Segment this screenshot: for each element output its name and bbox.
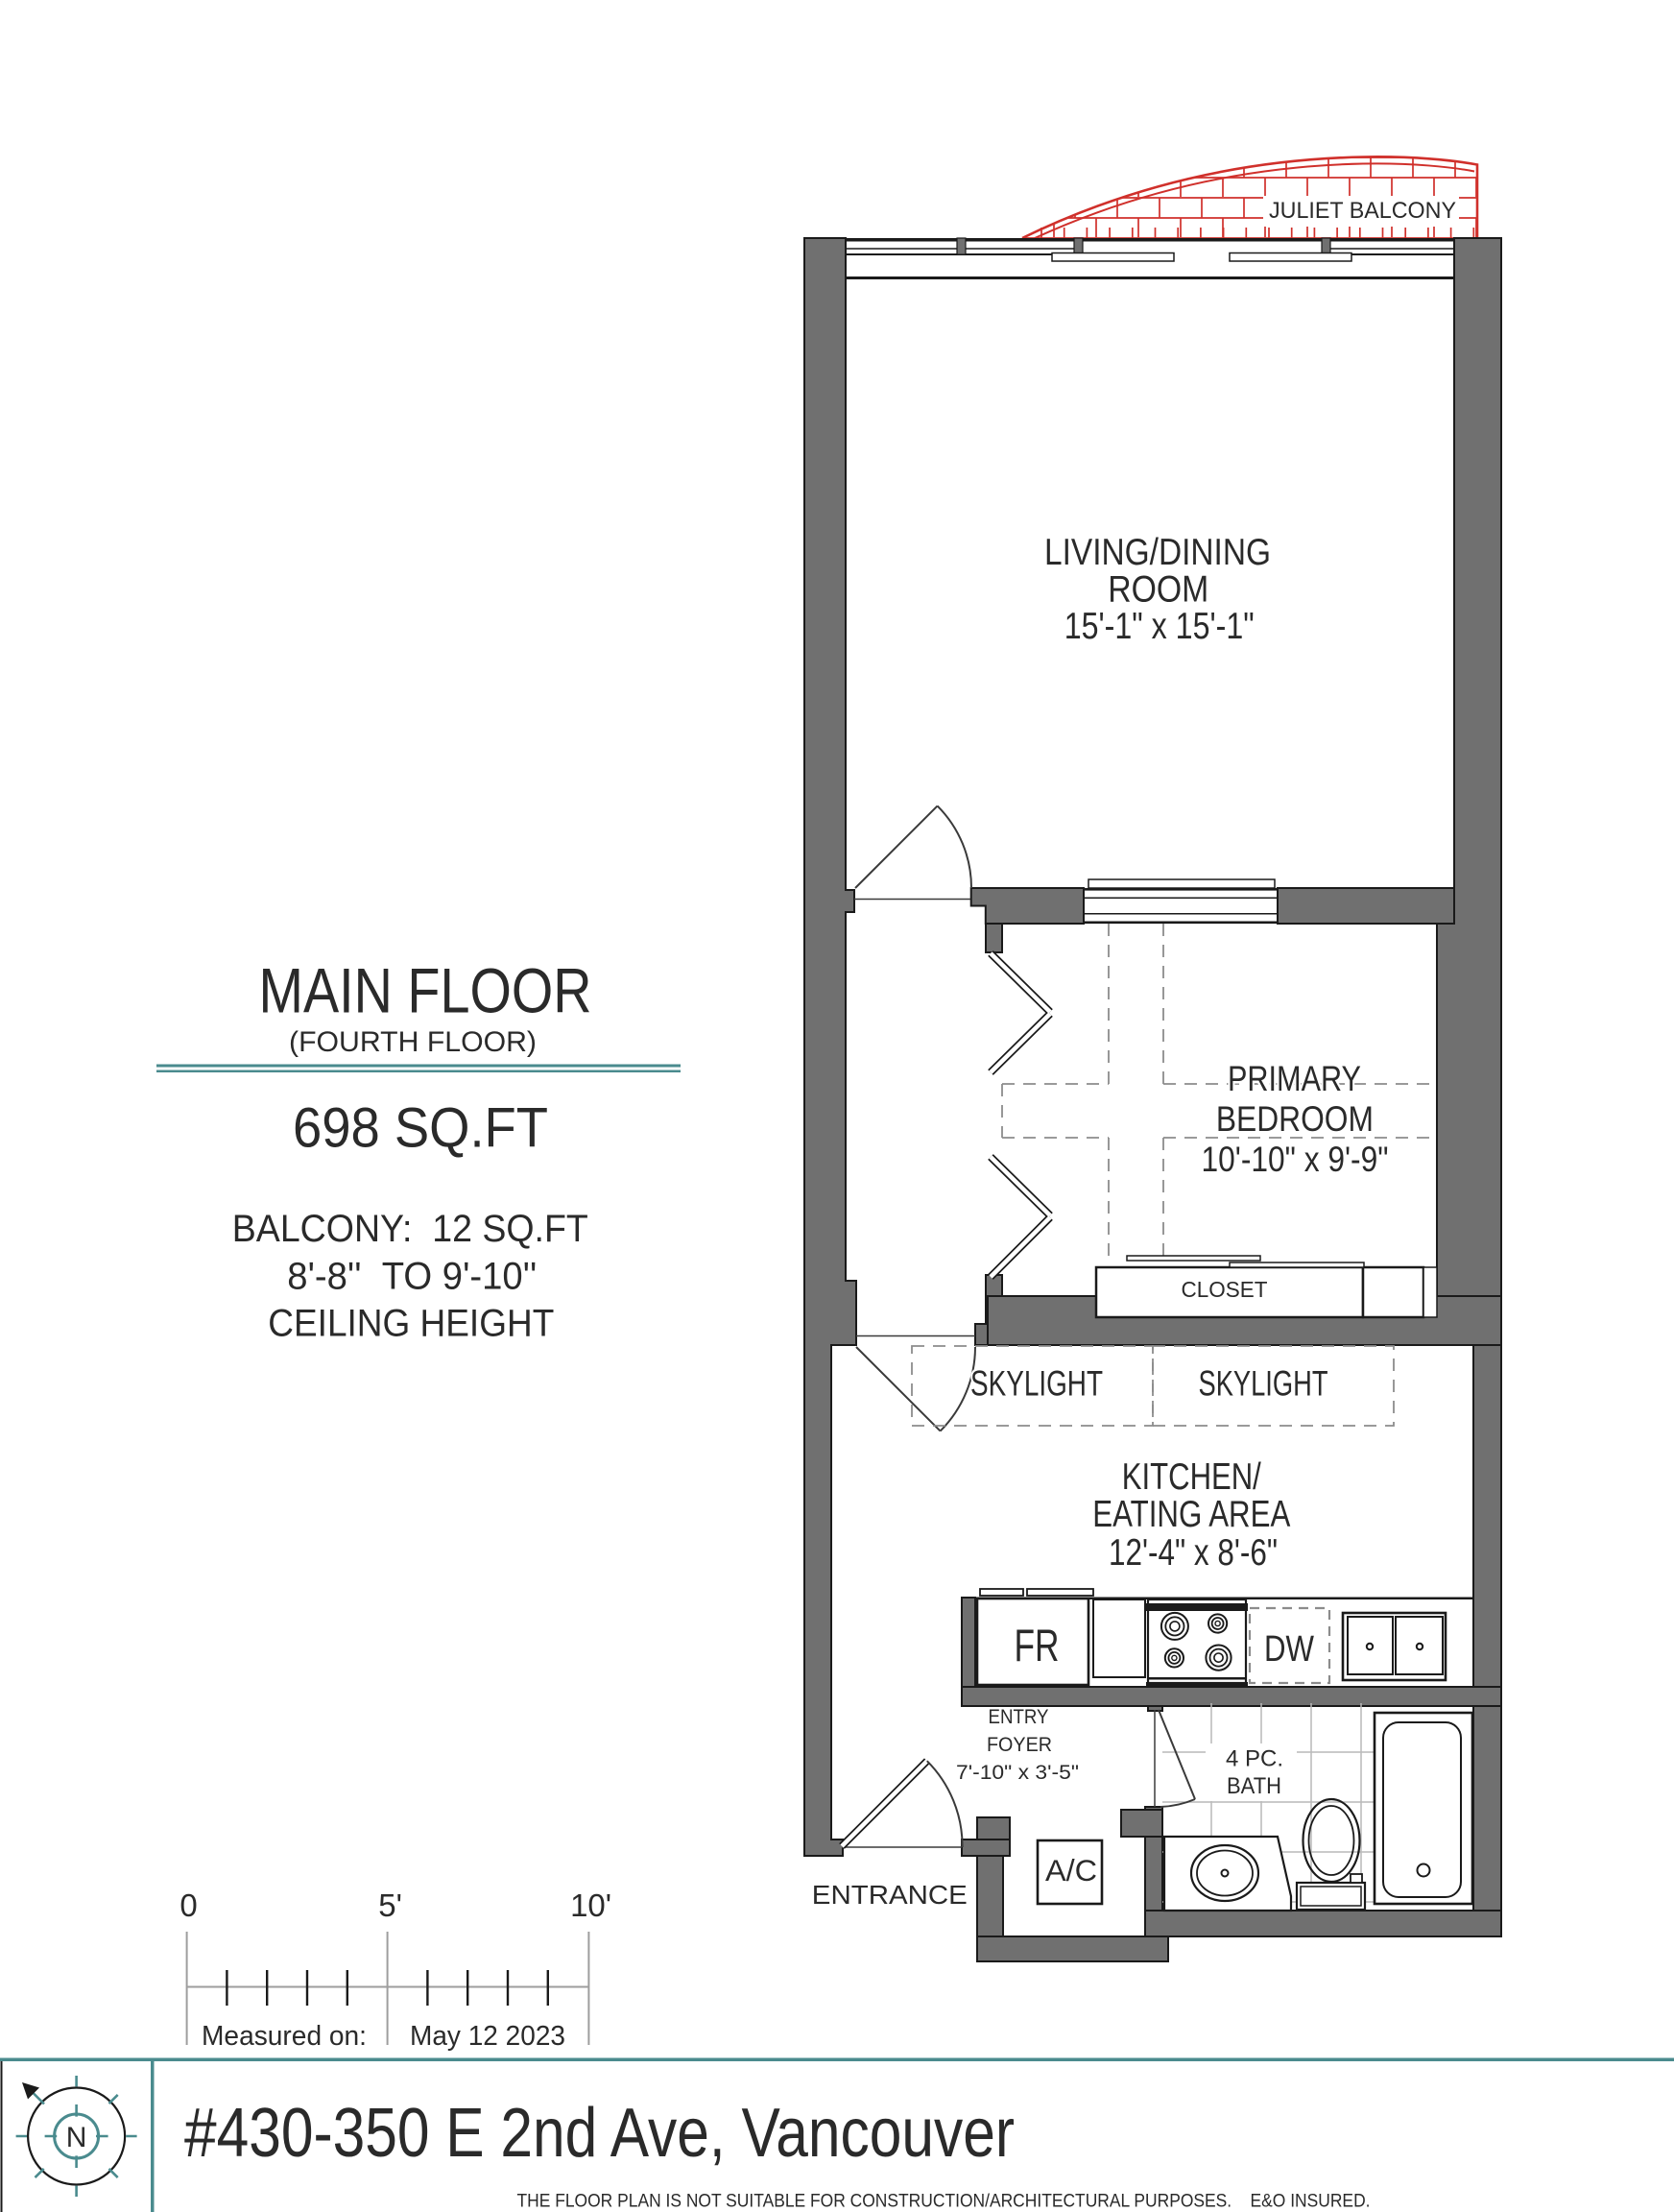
svg-text:5': 5' bbox=[378, 1887, 402, 1923]
svg-text:#430-350 E 2nd Ave, Vancouver: #430-350 E 2nd Ave, Vancouver bbox=[184, 2095, 1015, 2172]
svg-text:CEILING HEIGHT: CEILING HEIGHT bbox=[268, 1303, 554, 1345]
svg-text:THE FLOOR PLAN IS NOT SUITAB: THE FLOOR PLAN IS NOT SUITABLE FOR CONST… bbox=[517, 2191, 1371, 2212]
svg-text:A/C: A/C bbox=[1045, 1853, 1097, 1887]
svg-text:7'-10" x 3'-5": 7'-10" x 3'-5" bbox=[956, 1762, 1079, 1784]
svg-text:DW: DW bbox=[1264, 1629, 1314, 1670]
svg-text:MAIN FLOOR: MAIN FLOOR bbox=[259, 955, 592, 1026]
svg-text:ROOM: ROOM bbox=[1108, 569, 1208, 611]
svg-text:May 12 2023: May 12 2023 bbox=[410, 2021, 565, 2052]
svg-text:12'-4" x 8'-6": 12'-4" x 8'-6" bbox=[1109, 1532, 1278, 1574]
svg-text:PRIMARY: PRIMARY bbox=[1228, 1059, 1361, 1098]
svg-text:15'-1" x 15'-1": 15'-1" x 15'-1" bbox=[1064, 606, 1255, 647]
svg-text:CLOSET: CLOSET bbox=[1182, 1277, 1268, 1302]
svg-text:ENTRY: ENTRY bbox=[989, 1706, 1049, 1728]
svg-text:BALCONY: 12 SQ.FT: BALCONY: 12 SQ.FT bbox=[232, 1208, 588, 1250]
svg-text:SKYLIGHT: SKYLIGHT bbox=[970, 1363, 1103, 1404]
svg-text:EATING AREA: EATING AREA bbox=[1092, 1494, 1290, 1535]
svg-text:FR: FR bbox=[1015, 1620, 1060, 1671]
svg-text:0: 0 bbox=[179, 1887, 197, 1923]
svg-text:698 SQ.FT: 698 SQ.FT bbox=[293, 1097, 548, 1160]
svg-text:SKYLIGHT: SKYLIGHT bbox=[1199, 1363, 1328, 1404]
svg-text:Measured on:: Measured on: bbox=[202, 2021, 367, 2052]
svg-text:ENTRANCE: ENTRANCE bbox=[812, 1880, 968, 1910]
svg-text:JULIET BALCONY: JULIET BALCONY bbox=[1269, 198, 1456, 224]
svg-text:10'-10" x 9'-9": 10'-10" x 9'-9" bbox=[1202, 1140, 1389, 1179]
svg-text:LIVING/DINING: LIVING/DINING bbox=[1044, 532, 1271, 573]
svg-text:KITCHEN/: KITCHEN/ bbox=[1122, 1456, 1261, 1498]
svg-text:N: N bbox=[66, 2122, 87, 2153]
svg-text:BATH: BATH bbox=[1227, 1773, 1281, 1799]
svg-text:10': 10' bbox=[570, 1887, 611, 1923]
svg-text:(FOURTH FLOOR): (FOURTH FLOOR) bbox=[289, 1026, 537, 1058]
svg-text:8'-8'' TO 9'-10'': 8'-8'' TO 9'-10'' bbox=[287, 1255, 537, 1297]
svg-text:BEDROOM: BEDROOM bbox=[1216, 1099, 1374, 1139]
svg-text:4 PC.: 4 PC. bbox=[1226, 1746, 1283, 1772]
svg-text:FOYER: FOYER bbox=[987, 1734, 1052, 1756]
